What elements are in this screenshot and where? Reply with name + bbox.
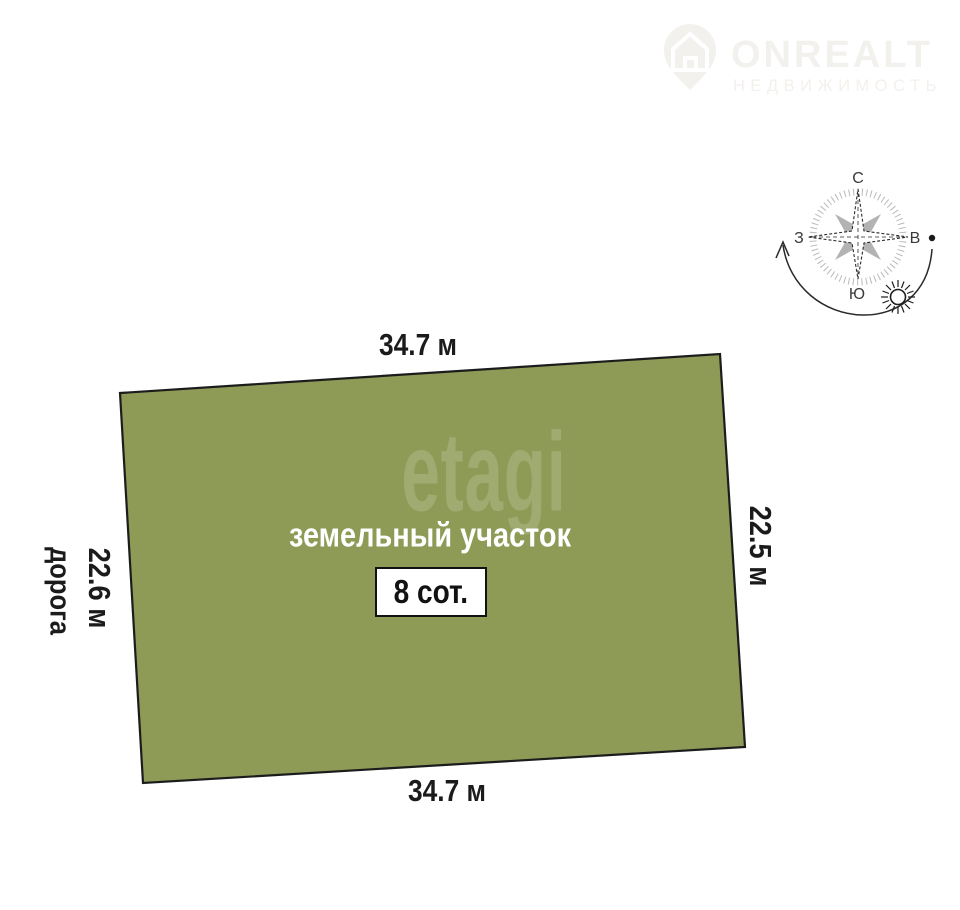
dim-label-bottom: 34.7 м — [408, 773, 486, 809]
dim-label-right: 22.5 м — [742, 506, 778, 587]
dim-label-top: 34.7 м — [379, 327, 457, 363]
plot-title: земельный участок — [289, 517, 571, 556]
road-label: дорога — [43, 547, 76, 635]
area-badge-label: 8 сот. — [394, 573, 468, 611]
area-badge: 8 сот. — [375, 567, 487, 617]
dim-label-left: 22.6 м — [81, 548, 117, 629]
